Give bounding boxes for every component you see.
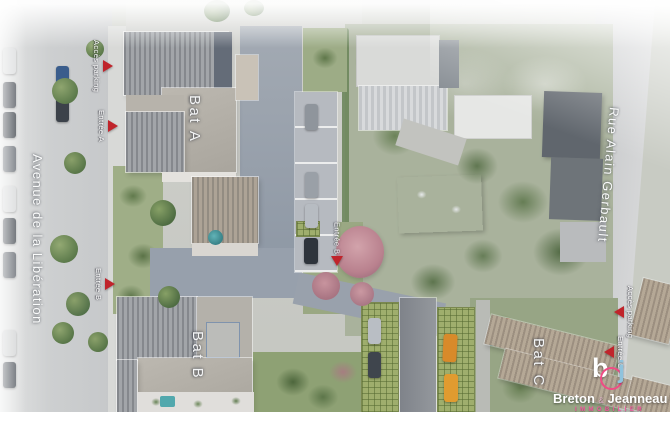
monogram-letter-j: j <box>618 356 625 385</box>
brand-monogram-icon: b j <box>589 360 631 390</box>
site-tree <box>158 286 180 308</box>
parked-car <box>3 362 16 388</box>
aerial-map: Avenue de la Libération Rue Alain Gerbau… <box>0 0 670 412</box>
bat-b-roof-southwest <box>117 360 137 412</box>
bat-a-roof-east <box>236 55 258 100</box>
parked-car <box>368 352 381 378</box>
parked-car-orange <box>444 374 458 402</box>
bat-b-skylight-frame <box>206 322 240 358</box>
arrow-right-icon <box>105 278 115 290</box>
bat-a-facade-dark <box>214 32 232 95</box>
arrow-right-icon <box>108 120 118 132</box>
marker-label: Entrée A <box>97 110 106 142</box>
site-tree <box>150 200 176 226</box>
street-tree <box>88 332 108 352</box>
parked-car <box>3 218 16 244</box>
street-tree <box>66 292 90 316</box>
parked-car <box>3 112 16 138</box>
street-tree <box>50 235 78 263</box>
brand-ampersand: & <box>599 396 604 405</box>
arrow-left-icon <box>614 306 624 318</box>
parked-car <box>305 204 318 228</box>
path-bottom <box>476 300 490 412</box>
building-label-bat-a: Bat A <box>186 82 203 156</box>
parked-car <box>305 104 318 130</box>
site-tree <box>204 0 230 22</box>
brand-name-second: Jeanneau <box>607 391 667 406</box>
marker-label: Entrée B <box>94 268 103 300</box>
mid-building-roof <box>192 177 258 243</box>
north-building-flat <box>357 36 439 86</box>
marker-entree-b-west: Entrée B <box>94 268 115 300</box>
marker-label: Accès parking <box>92 40 101 92</box>
parked-car <box>305 172 318 198</box>
site-plan-image: Avenue de la Libération Rue Alain Gerbau… <box>0 0 670 446</box>
marker-access-parking-west: Accès parking <box>92 40 113 92</box>
bat-b-roof-west <box>117 297 197 360</box>
marker-label: Entrée B <box>333 222 342 254</box>
parked-car <box>3 48 16 74</box>
building-label-bat-c: Bat C <box>530 326 547 400</box>
brand-tagline: IMMOBILIER <box>553 407 667 412</box>
garden-drive-top <box>303 28 347 92</box>
arrow-right-icon <box>103 60 113 72</box>
brand-name: Breton & Jeanneau <box>553 391 667 406</box>
parked-car <box>3 82 16 108</box>
parked-car <box>3 186 16 212</box>
marker-label: Accès parking <box>626 286 635 338</box>
parked-car <box>368 318 381 344</box>
marker-entree-b-court: Entrée B <box>331 222 343 266</box>
house-roof-dark-2 <box>549 157 603 221</box>
bat-b-pool <box>160 396 175 407</box>
bat-a-roof-ledge <box>126 95 184 113</box>
parked-car <box>304 238 318 264</box>
parked-car <box>3 330 16 356</box>
bat-c-roof-east <box>630 278 670 344</box>
brand-name-first: Breton <box>553 391 595 406</box>
north-building-wing <box>439 40 459 88</box>
flowering-tree-pink <box>336 226 384 278</box>
house-roof-gray <box>397 175 483 234</box>
flowering-tree-pink <box>350 282 374 306</box>
bat-a-roof-north <box>124 32 228 95</box>
flowering-tree-pink <box>312 272 340 300</box>
parked-car <box>3 252 16 278</box>
site-tree <box>244 0 264 16</box>
street-tree <box>52 322 74 344</box>
north-white-building <box>455 96 531 138</box>
row-house-roof <box>400 298 436 412</box>
house-roof-dark-1 <box>542 91 602 159</box>
street-tree <box>64 152 86 174</box>
mid-building-terrace <box>192 243 258 256</box>
marker-access-parking-east: Accès parking <box>614 286 635 338</box>
street-tree <box>52 78 78 104</box>
marker-entree-a: Entrée A <box>97 110 118 142</box>
arrow-down-icon <box>331 256 343 266</box>
brand-logo: b j Breton & Jeanneau IMMOBILIER <box>553 360 667 412</box>
bat-a-roof-west <box>126 112 184 172</box>
garden-batb-east <box>253 352 365 412</box>
parked-car-orange <box>442 334 457 363</box>
building-label-bat-b: Bat B <box>189 316 206 396</box>
parasol <box>208 230 223 245</box>
parked-car <box>3 146 16 172</box>
street-label-avenue: Avenue de la Libération <box>30 150 45 328</box>
